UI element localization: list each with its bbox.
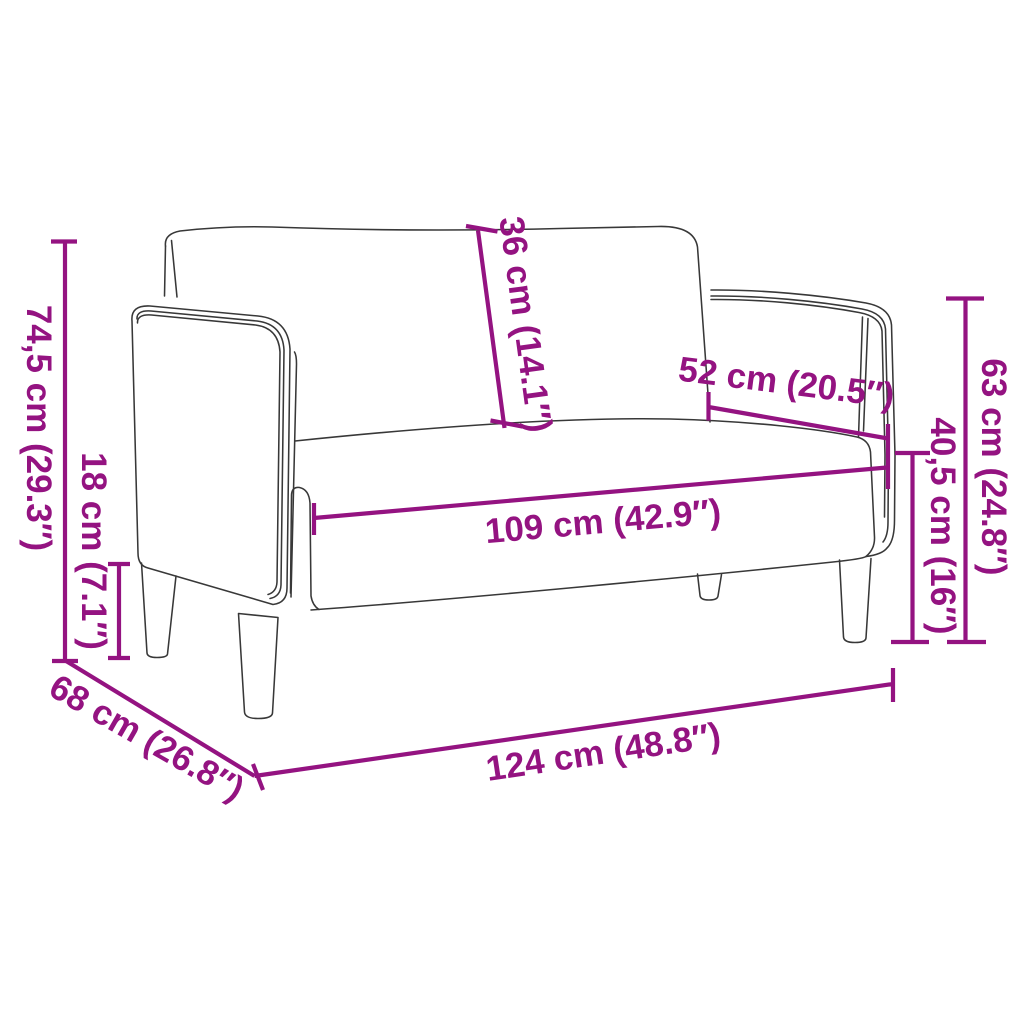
svg-text:63 cm (24.8″): 63 cm (24.8″) — [974, 358, 1013, 575]
svg-text:18 cm (7.1″): 18 cm (7.1″) — [74, 452, 113, 650]
svg-text:74,5 cm (29.3″): 74,5 cm (29.3″) — [19, 305, 58, 551]
svg-text:40,5 cm (16″): 40,5 cm (16″) — [923, 417, 962, 634]
